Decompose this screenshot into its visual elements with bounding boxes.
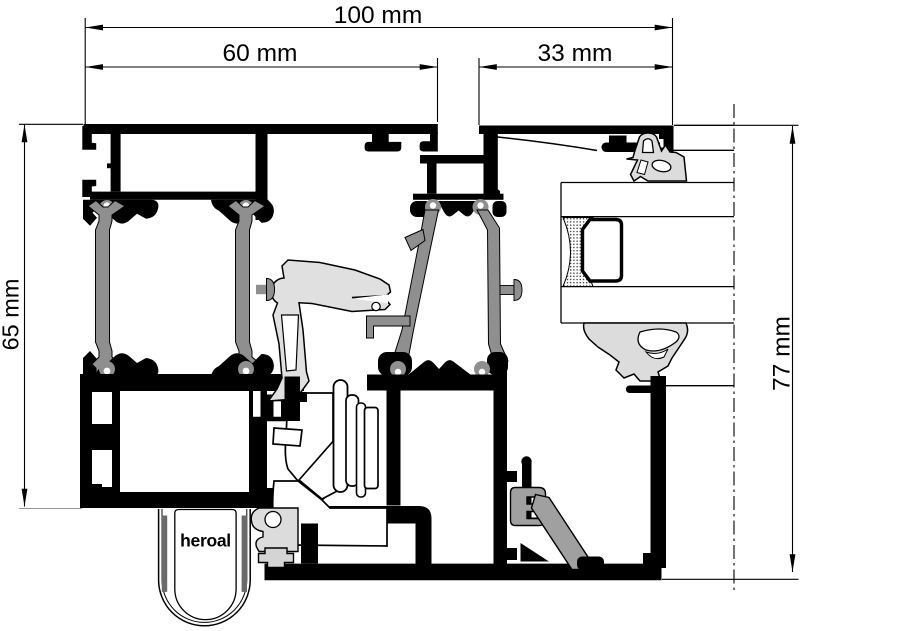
svg-text:77 mm: 77 mm	[769, 316, 796, 391]
svg-text:60 mm: 60 mm	[223, 40, 298, 67]
svg-text:heroal: heroal	[180, 531, 231, 551]
svg-text:100 mm: 100 mm	[334, 2, 423, 29]
svg-text:33 mm: 33 mm	[538, 40, 613, 67]
svg-text:65 mm: 65 mm	[0, 279, 24, 351]
